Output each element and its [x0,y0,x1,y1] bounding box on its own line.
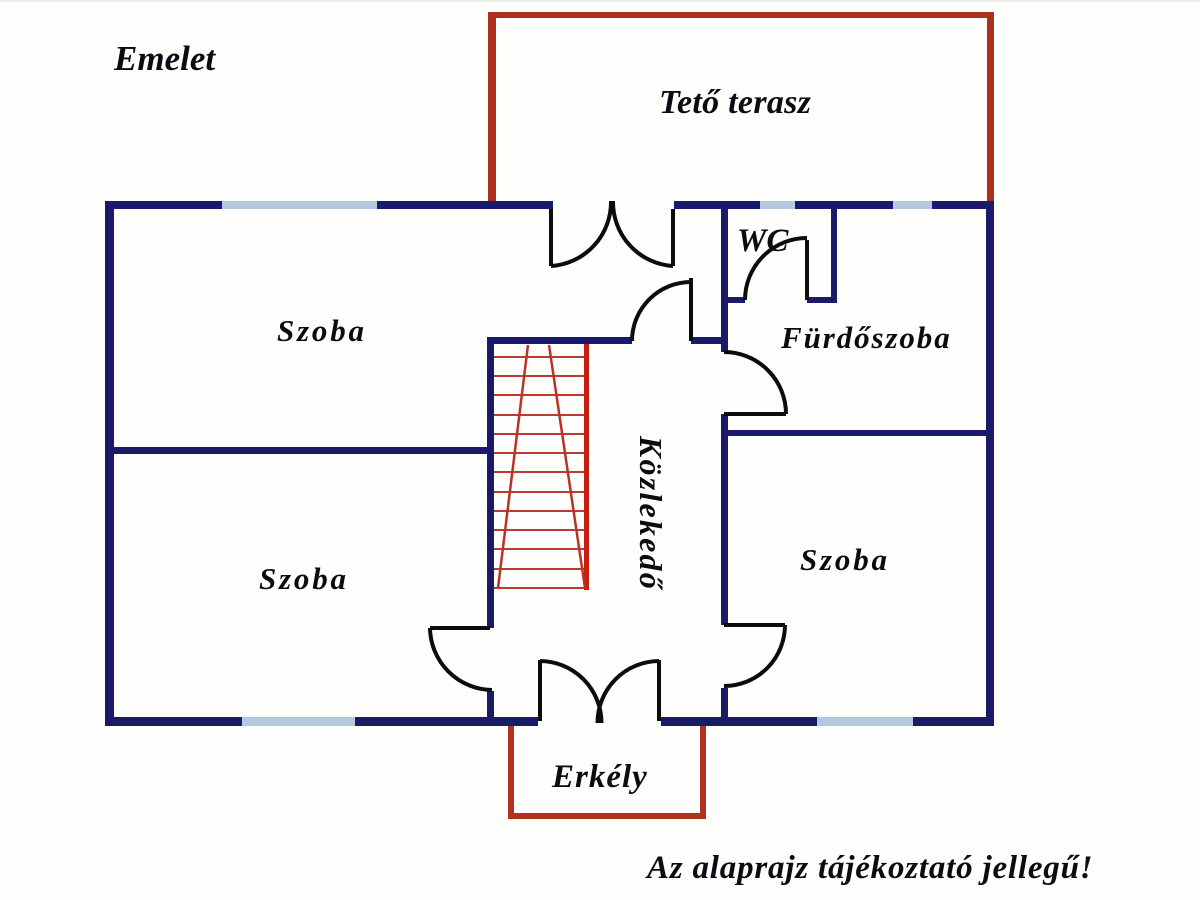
svg-text:Fürdőszoba: Fürdőszoba [780,320,952,355]
svg-text:Szoba: Szoba [277,313,367,348]
svg-text:Az alaprajz tájékoztató jelleg: Az alaprajz tájékoztató jellegű! [645,850,1093,886]
svg-text:Emelet: Emelet [113,39,216,78]
svg-text:Tető terasz: Tető terasz [659,84,812,121]
svg-text:Közlekedő: Közlekedő [633,435,669,591]
svg-text:Erkély: Erkély [551,759,648,795]
svg-text:WC: WC [737,223,789,259]
svg-text:Szoba: Szoba [259,561,349,596]
svg-text:Szoba: Szoba [800,542,890,577]
